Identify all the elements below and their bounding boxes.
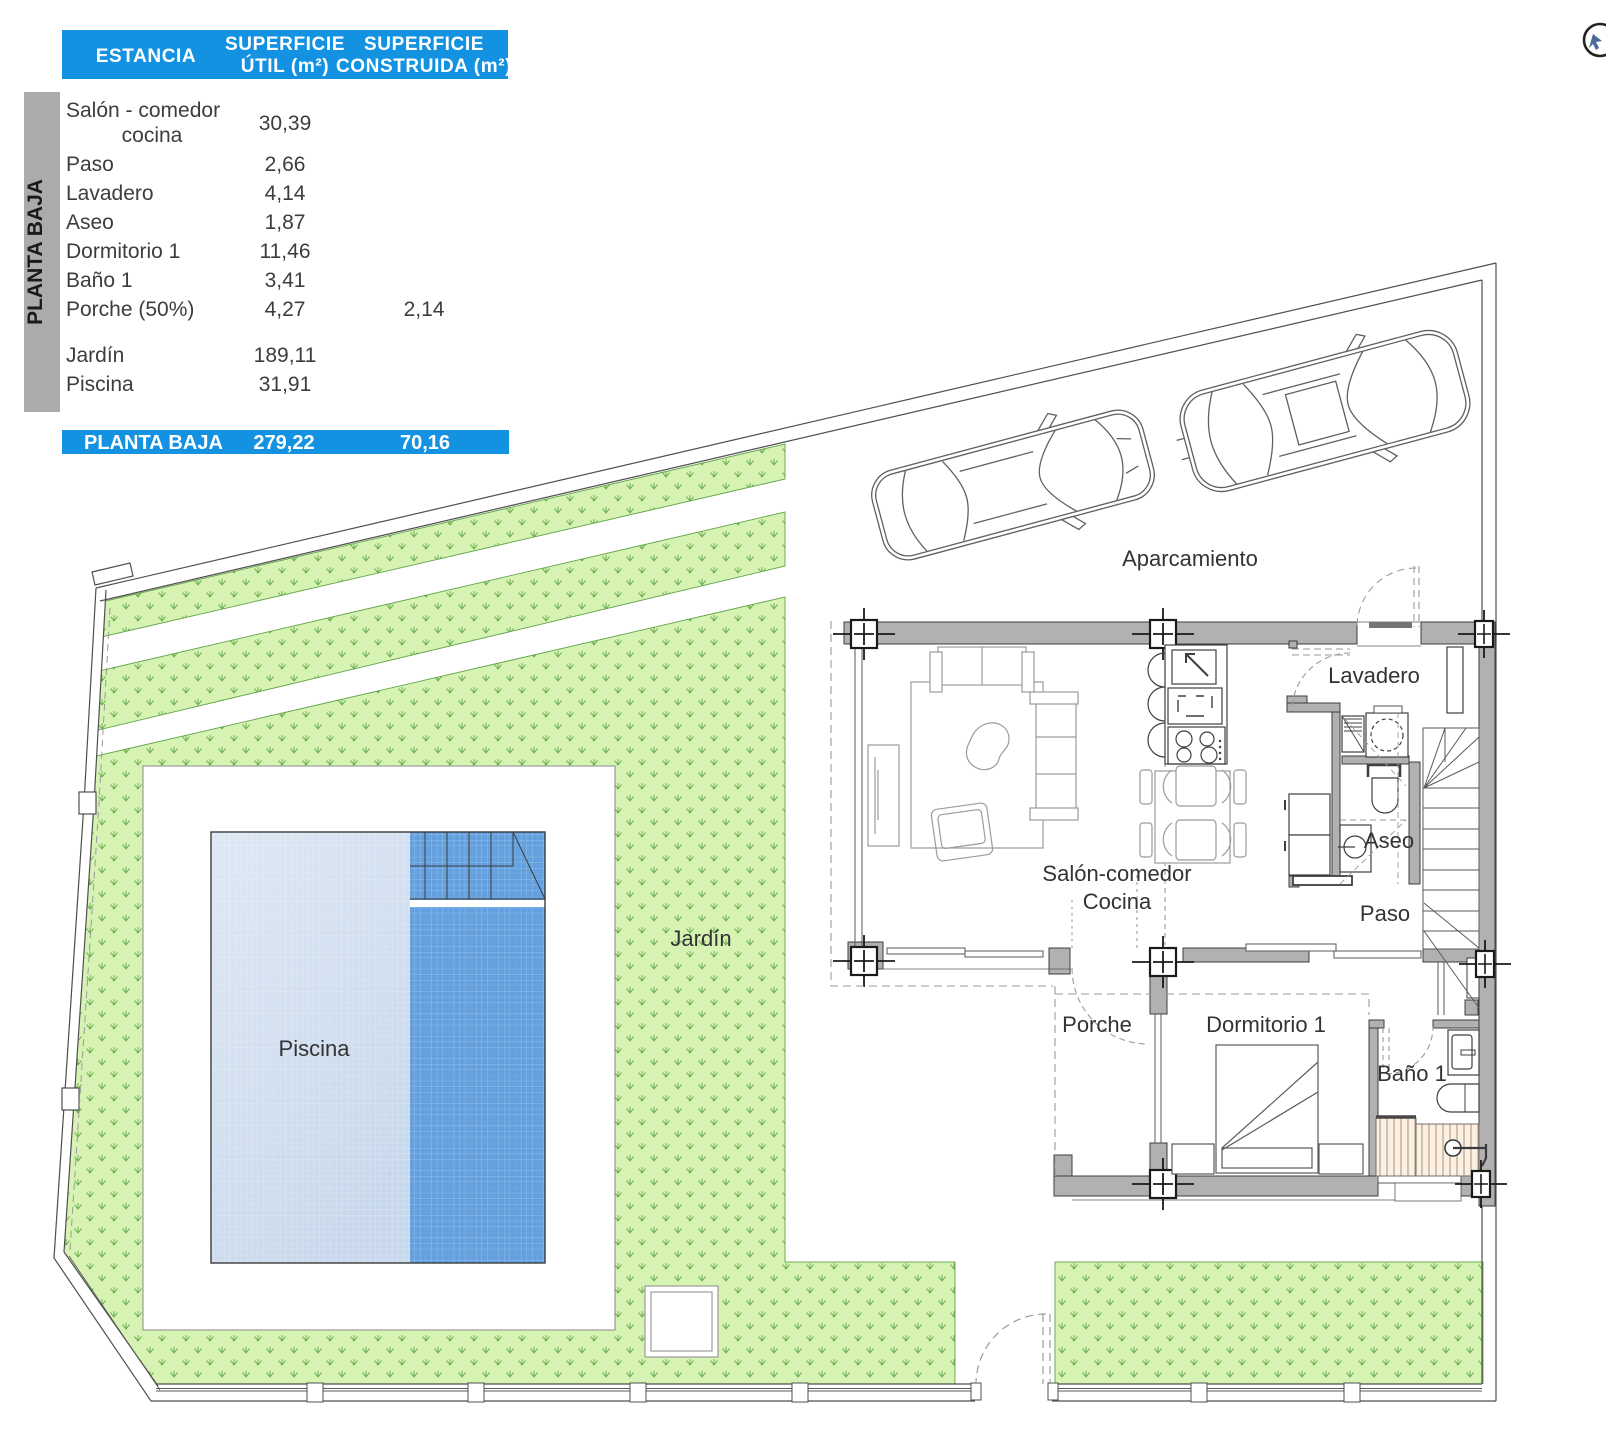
svg-text:11,46: 11,46 <box>260 240 311 263</box>
svg-text:31,91: 31,91 <box>259 373 312 396</box>
svg-text:SUPERFICIE: SUPERFICIE <box>225 34 345 55</box>
svg-text:Piscina: Piscina <box>279 1036 351 1061</box>
svg-text:Paso: Paso <box>1360 901 1410 926</box>
svg-text:2,66: 2,66 <box>265 153 306 176</box>
svg-text:279,22: 279,22 <box>253 432 314 454</box>
svg-text:Porche: Porche <box>1062 1012 1132 1037</box>
svg-text:3,41: 3,41 <box>265 269 306 292</box>
svg-text:SUPERFICIE: SUPERFICIE <box>364 34 484 55</box>
svg-text:PLANTA BAJA: PLANTA BAJA <box>24 179 47 325</box>
svg-text:2,14: 2,14 <box>404 298 445 321</box>
svg-text:Lavadero: Lavadero <box>1328 663 1420 688</box>
svg-text:Lavadero: Lavadero <box>66 182 154 205</box>
svg-text:Dormitorio 1: Dormitorio 1 <box>66 240 180 263</box>
svg-text:Baño 1: Baño 1 <box>66 269 133 292</box>
svg-text:4,27: 4,27 <box>265 298 306 321</box>
svg-text:Aparcamiento: Aparcamiento <box>1122 546 1258 571</box>
svg-text:30,39: 30,39 <box>259 112 312 135</box>
svg-text:1,87: 1,87 <box>265 211 306 234</box>
svg-text:Piscina: Piscina <box>66 373 134 396</box>
svg-text:PLANTA BAJA: PLANTA BAJA <box>84 432 223 454</box>
svg-text:CONSTRUIDA (m²): CONSTRUIDA (m²) <box>336 56 512 77</box>
svg-text:Paso: Paso <box>66 153 114 176</box>
svg-text:Dormitorio 1: Dormitorio 1 <box>1206 1012 1326 1037</box>
svg-text:ESTANCIA: ESTANCIA <box>96 46 197 67</box>
svg-text:4,14: 4,14 <box>265 182 306 205</box>
svg-text:Aseo: Aseo <box>1364 828 1414 853</box>
svg-text:Salón-comedor: Salón-comedor <box>1042 861 1191 886</box>
svg-text:ÚTIL (m²): ÚTIL (m²) <box>241 55 329 77</box>
svg-text:cocina: cocina <box>122 124 183 147</box>
svg-text:Salón - comedor: Salón - comedor <box>66 99 220 122</box>
svg-text:70,16: 70,16 <box>400 432 450 454</box>
svg-text:Aseo: Aseo <box>66 211 114 234</box>
svg-text:Jardín: Jardín <box>66 344 124 367</box>
svg-text:Cocina: Cocina <box>1083 889 1152 914</box>
svg-text:Baño 1: Baño 1 <box>1377 1061 1447 1086</box>
svg-text:Porche (50%): Porche (50%) <box>66 298 194 321</box>
svg-text:189,11: 189,11 <box>254 344 317 367</box>
svg-text:Jardín: Jardín <box>670 926 731 951</box>
